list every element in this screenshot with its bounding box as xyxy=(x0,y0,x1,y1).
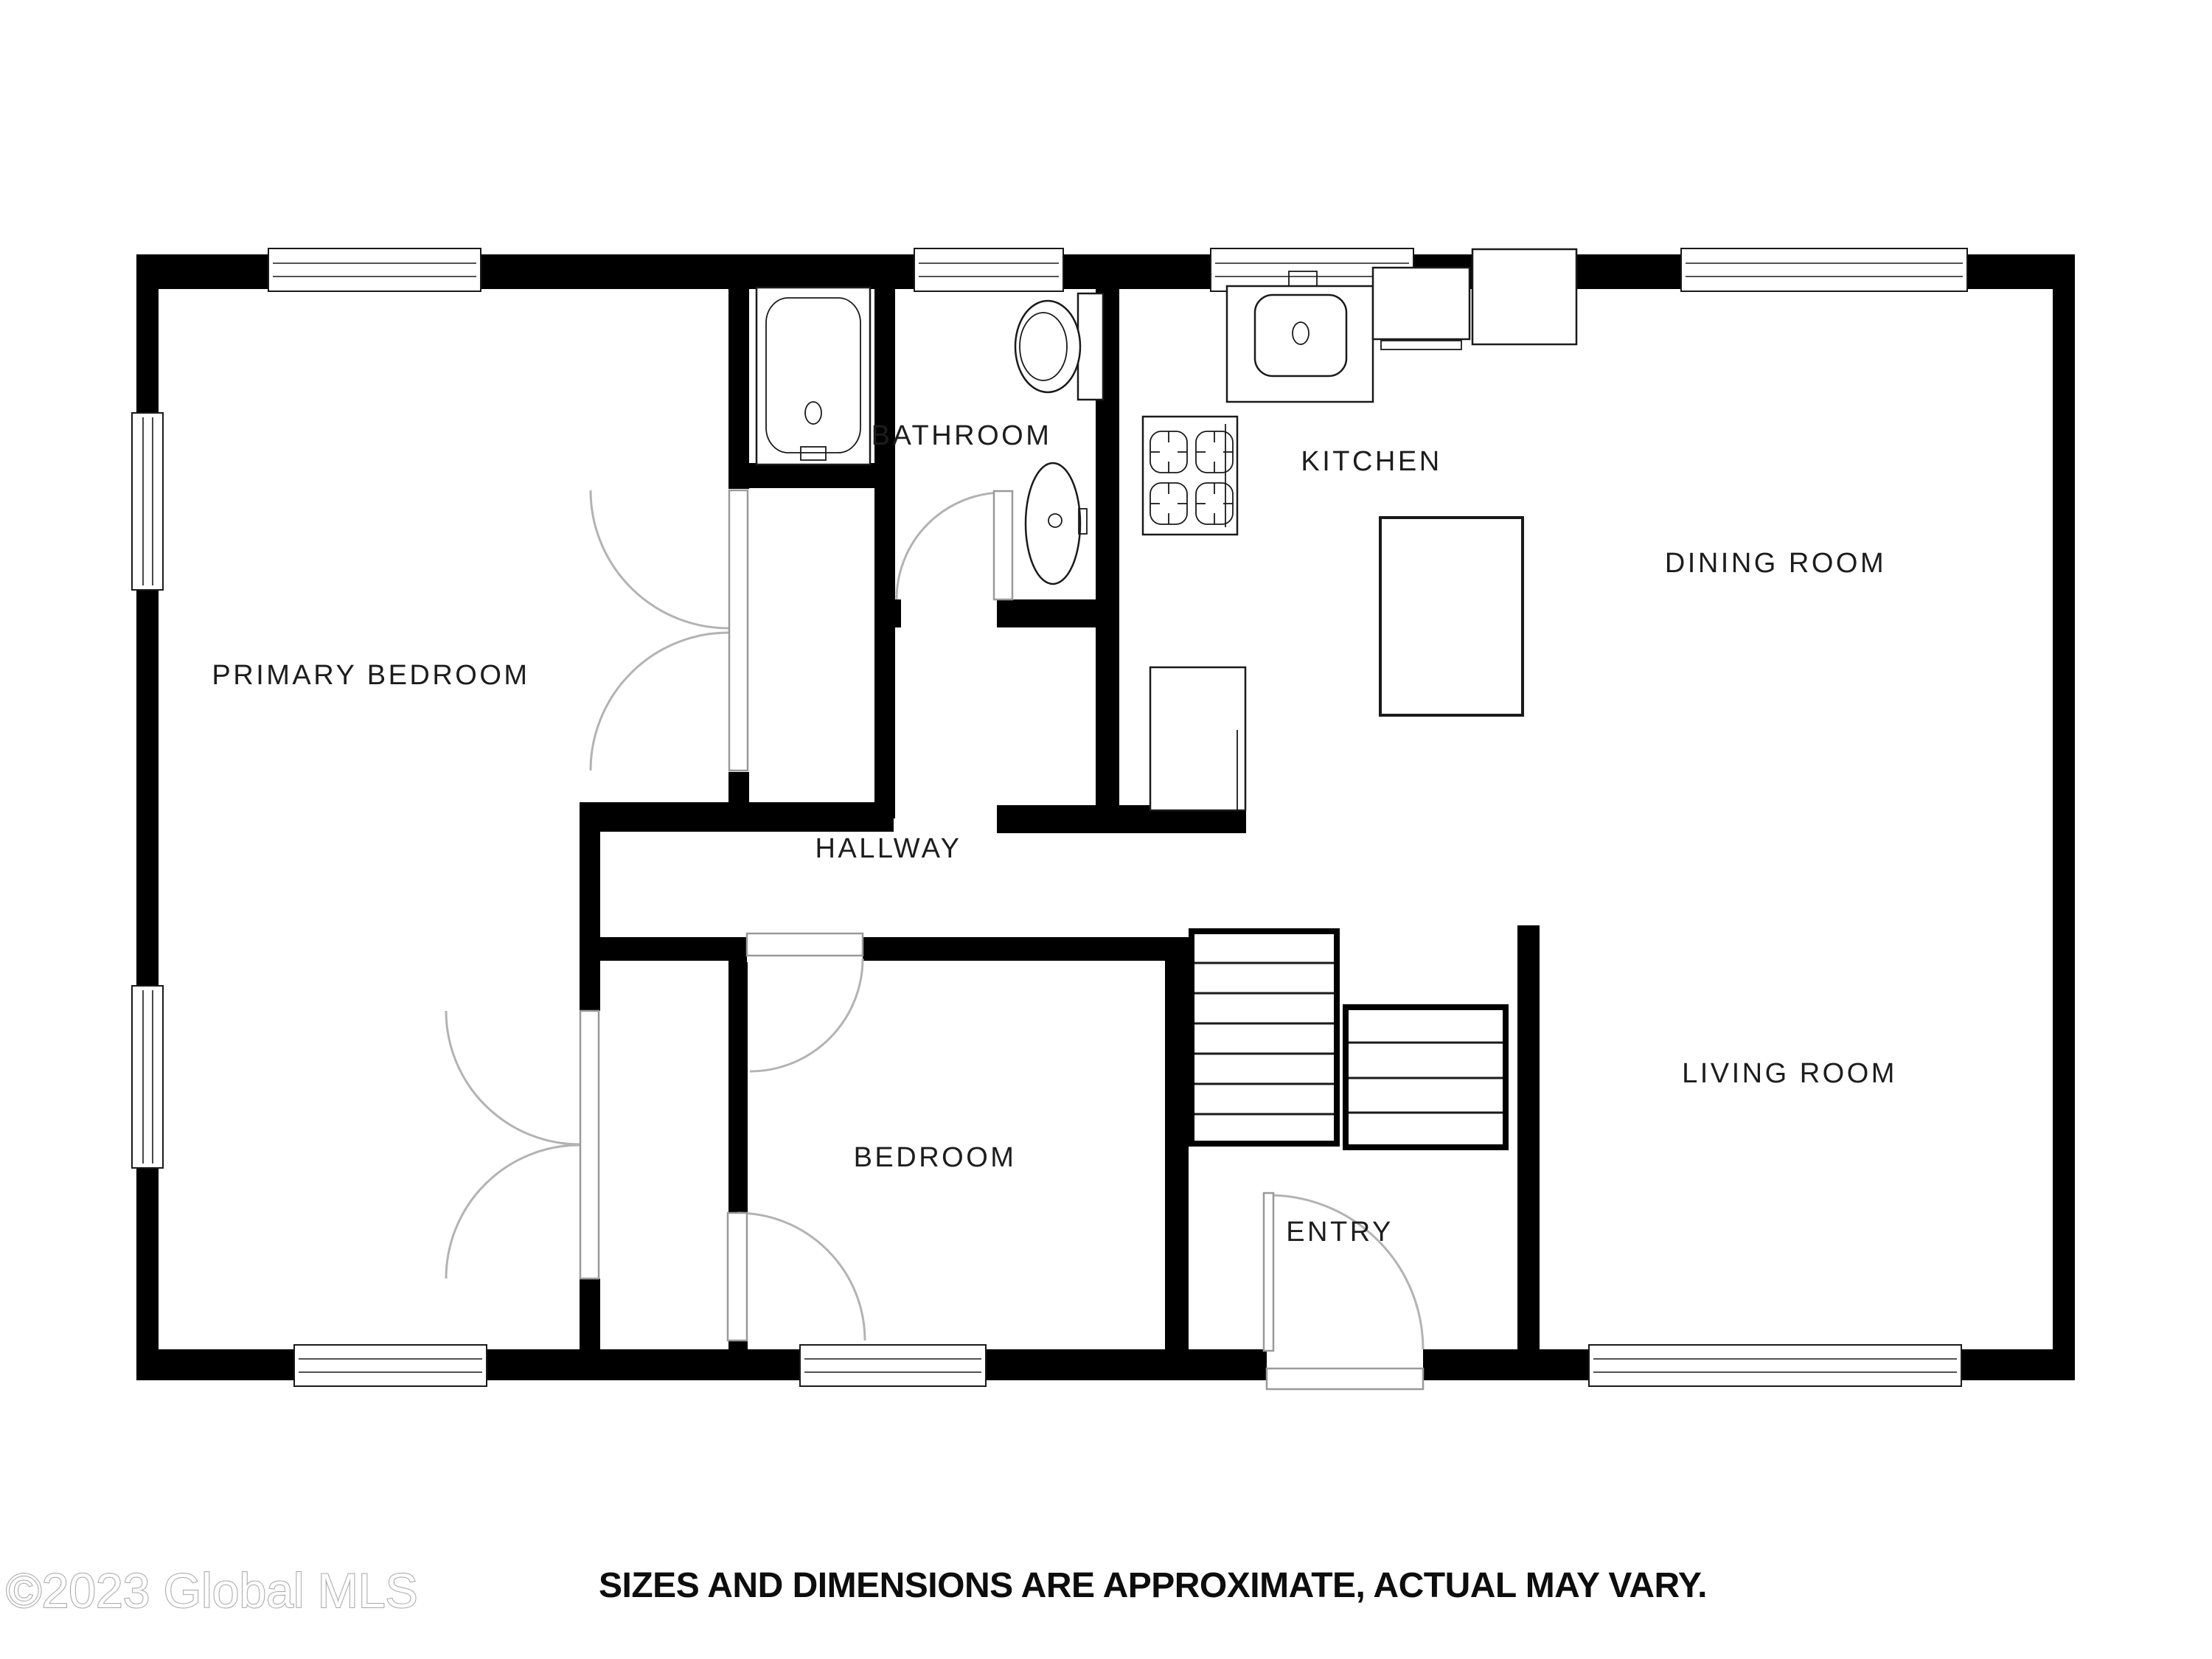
wall-tub-alcove-bottom xyxy=(728,463,895,488)
wall-bedroom-right xyxy=(1165,937,1189,1349)
wall-living-room-divider xyxy=(1517,925,1540,1349)
label-primary-bedroom: PRIMARY BEDROOM xyxy=(212,660,529,691)
window-dining-room-top xyxy=(1681,248,1967,291)
label-bedroom: BEDROOM xyxy=(854,1142,1017,1173)
window-primary-bedroom-bottom xyxy=(294,1345,487,1386)
door-leaf xyxy=(580,1011,599,1279)
window-living-room-bottom xyxy=(1589,1345,1961,1386)
toilet xyxy=(1015,293,1103,400)
floorplan-canvas: PRIMARY BEDROOM BATHROOM KITCHEN DINING … xyxy=(0,0,2212,1659)
label-bathroom: BATHROOM xyxy=(872,420,1052,451)
wall-outer-right xyxy=(2053,254,2075,1380)
floorplan-page: PRIMARY BEDROOM BATHROOM KITCHEN DINING … xyxy=(0,0,2212,1659)
disclaimer: SIZES AND DIMENSIONS ARE APPROXIMATE, AC… xyxy=(599,1566,1707,1605)
window-bathroom-top xyxy=(914,248,1063,291)
window-primary-bedroom-top xyxy=(268,248,481,291)
door-leaf xyxy=(994,491,1012,599)
bathtub xyxy=(757,288,870,465)
label-dining-room: DINING ROOM xyxy=(1665,548,1886,579)
door-leaf xyxy=(728,1213,747,1340)
wall-hallway-bottom-left xyxy=(580,802,894,832)
island xyxy=(1380,518,1523,715)
window-primary-bedroom-left-upper xyxy=(132,413,163,590)
door-leaf xyxy=(1264,1193,1273,1351)
stairs-upper-run xyxy=(1192,931,1337,1144)
label-hallway: HALLWAY xyxy=(815,833,961,864)
dishwasher xyxy=(1373,268,1470,349)
kitchen-sink-counter xyxy=(1227,271,1373,402)
opening-bathroom-door xyxy=(901,598,997,629)
window-primary-bedroom-left-lower xyxy=(132,986,163,1168)
window-bedroom-bottom xyxy=(800,1345,986,1386)
door-leaf xyxy=(729,490,748,771)
stairs-lower-run xyxy=(1346,1007,1506,1147)
wall-bedroom-top xyxy=(580,937,1189,961)
label-entry: ENTRY xyxy=(1286,1217,1394,1248)
door-threshold xyxy=(1267,1368,1423,1389)
cabinet xyxy=(1472,249,1576,344)
label-kitchen: KITCHEN xyxy=(1301,446,1441,477)
door-leaf xyxy=(747,933,863,956)
lower-cabinet xyxy=(1150,667,1245,810)
wall-closet-right xyxy=(874,286,895,818)
label-living-room: LIVING ROOM xyxy=(1682,1058,1897,1089)
watermark: ©2023 Global MLS xyxy=(6,1563,418,1618)
stove xyxy=(1143,417,1237,535)
